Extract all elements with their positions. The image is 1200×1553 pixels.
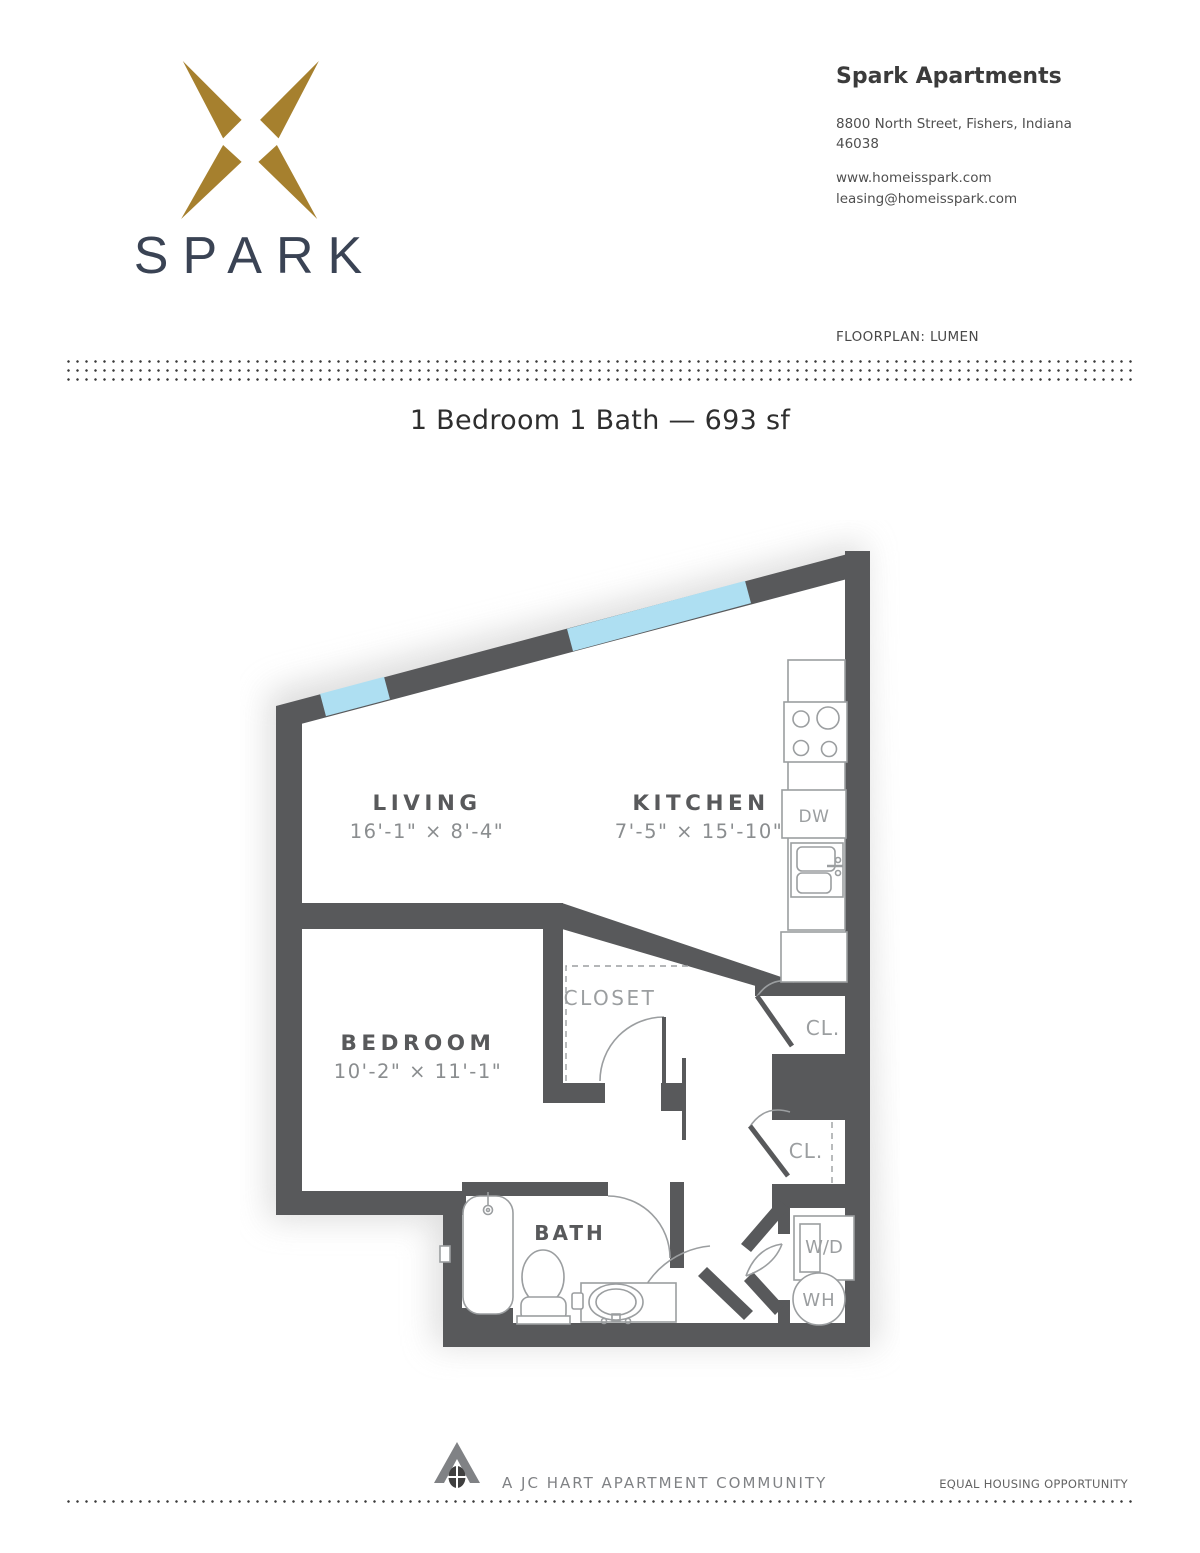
community-tagline: A JC HART APARTMENT COMMUNITY [502, 1474, 827, 1492]
property-address: 8800 North Street, Fishers, Indiana 4603… [836, 114, 1072, 155]
wh-label: WH [802, 1290, 835, 1311]
page-title: 1 Bedroom 1 Bath — 693 sf [0, 405, 1200, 436]
bedroom-dims: 10'-2" × 11'-1" [334, 1060, 502, 1083]
floorplan-name-label: FLOORPLAN: LUMEN [836, 329, 979, 345]
jchart-house-icon [432, 1441, 482, 1493]
address-line-1: 8800 North Street, Fishers, Indiana [836, 114, 1072, 134]
dotted-separator-top [64, 356, 1136, 381]
vanity-handle [572, 1293, 583, 1309]
sink-basin-bottom [797, 873, 831, 893]
toilet-bowl [522, 1250, 564, 1304]
living-dims: 16'-1" × 8'-4" [350, 820, 505, 843]
bath-label: BATH [534, 1221, 606, 1245]
email-link[interactable]: leasing@homeisspark.com [836, 189, 1017, 210]
wd-label: W/D [805, 1237, 843, 1258]
kitchen-dims: 7'-5" × 15'-10" [615, 820, 783, 843]
dw-label: DW [799, 807, 830, 827]
refrigerator [781, 932, 847, 982]
cl2-label: CL. [789, 1139, 823, 1163]
tub-handle [440, 1246, 450, 1262]
property-name: Spark Apartments [836, 64, 1062, 89]
bathtub [463, 1196, 513, 1314]
website-link[interactable]: www.homeisspark.com [836, 168, 1017, 189]
toilet-base [517, 1316, 570, 1324]
stove [784, 702, 847, 762]
property-contact: www.homeisspark.com leasing@homeisspark.… [836, 168, 1017, 210]
closet-label: CLOSET [564, 986, 657, 1010]
living-label: LIVING [373, 791, 482, 816]
spark-logo-icon [157, 56, 343, 224]
spark-wordmark: SPARK [112, 226, 398, 286]
floorplan-sheet: SPARK Spark Apartments 8800 North Street… [0, 0, 1200, 1553]
vanity-sink-inner [596, 1289, 636, 1315]
sink-basin-top [797, 847, 835, 871]
dotted-separator-bottom [64, 1496, 1136, 1505]
floorplan-drawing: LIVING 16'-1" × 8'-4" KITCHEN 7'-5" × 15… [240, 520, 900, 1380]
address-line-2: 46038 [836, 134, 1072, 154]
bedroom-label: BEDROOM [341, 1031, 496, 1056]
cl1-label: CL. [806, 1016, 840, 1040]
kitchen-label: KITCHEN [632, 791, 769, 816]
equal-housing-text: EQUAL HOUSING OPPORTUNITY [836, 1477, 1128, 1491]
